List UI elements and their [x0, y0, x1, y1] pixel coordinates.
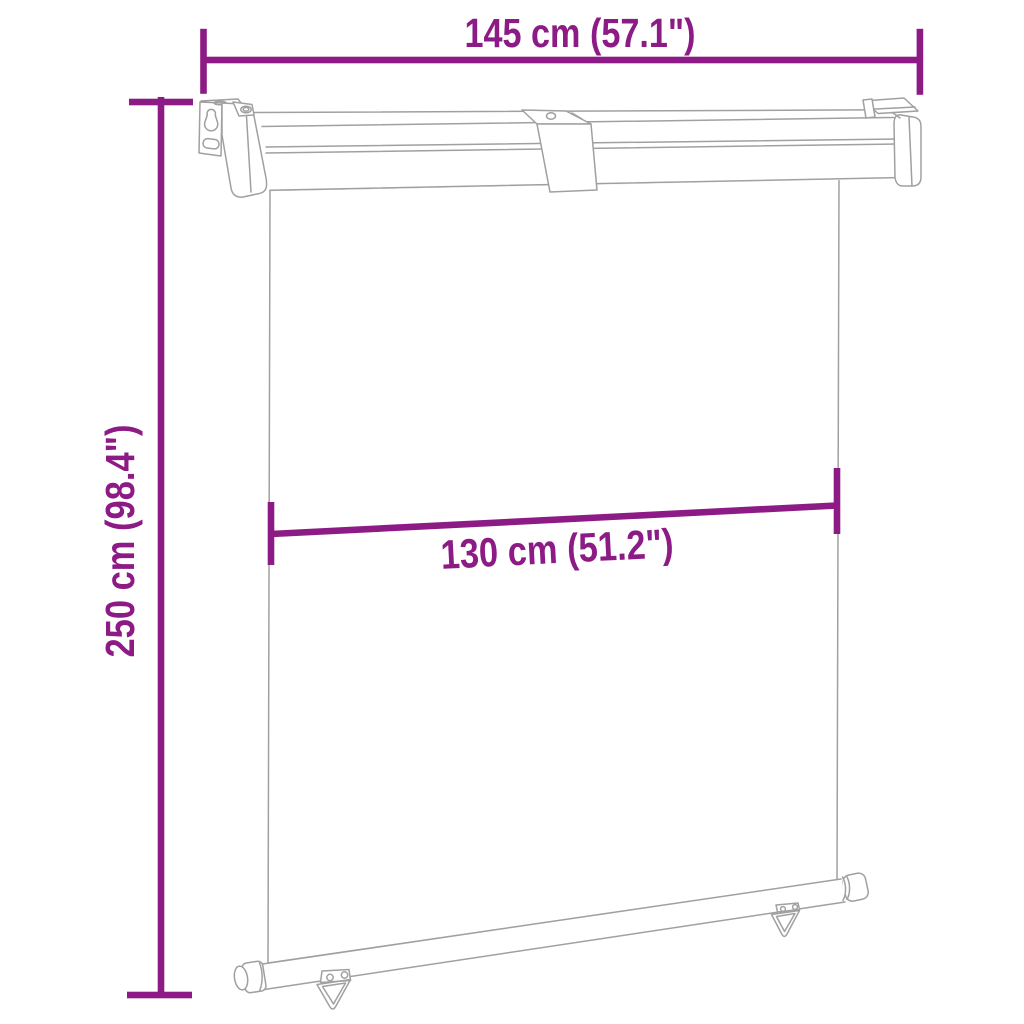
svg-text:145 cm (57.1"): 145 cm (57.1") [465, 10, 696, 56]
svg-text:250 cm (98.4"): 250 cm (98.4") [97, 425, 143, 658]
